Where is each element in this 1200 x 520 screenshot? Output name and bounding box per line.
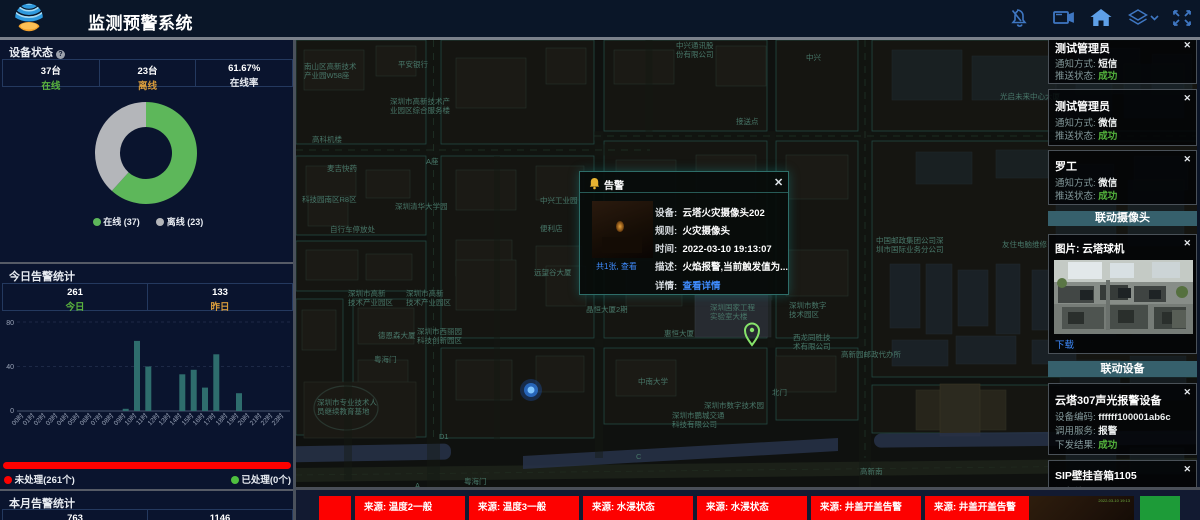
svg-text:惠恒大厦: 惠恒大厦 bbox=[664, 328, 694, 338]
svg-text:科技园南区R8区: 科技园南区R8区 bbox=[302, 194, 357, 204]
svg-text:友住电脑维修: 友住电脑维修 bbox=[1002, 239, 1047, 249]
svg-text:术有限公司: 术有限公司 bbox=[793, 341, 831, 351]
svg-text:晶恒大厦2期: 晶恒大厦2期 bbox=[586, 304, 628, 314]
svg-text:高科机楼: 高科机楼 bbox=[312, 134, 342, 144]
svg-text:高新园邮政代办所: 高新园邮政代办所 bbox=[841, 349, 901, 359]
svg-text:产业园W58座: 产业园W58座 bbox=[304, 70, 350, 80]
svg-text:南山区高新技术: 南山区高新技术 bbox=[304, 61, 357, 71]
svg-text:圳市国际业务分公司: 圳市国际业务分公司 bbox=[876, 244, 944, 254]
svg-text:中兴工业园: 中兴工业园 bbox=[540, 195, 578, 205]
svg-text:科技有限公司: 科技有限公司 bbox=[672, 419, 717, 429]
svg-text:40: 40 bbox=[6, 364, 14, 371]
svg-text:技术园区: 技术园区 bbox=[789, 309, 819, 319]
svg-text:份有限公司: 份有限公司 bbox=[676, 49, 714, 59]
svg-text:深圳清华大学园: 深圳清华大学园 bbox=[395, 201, 448, 211]
svg-text:实验室大楼: 实验室大楼 bbox=[710, 311, 748, 321]
svg-text:中兴: 中兴 bbox=[806, 52, 821, 62]
svg-text:高新南: 高新南 bbox=[860, 466, 883, 476]
svg-text:深圳市高新: 深圳市高新 bbox=[406, 288, 444, 298]
svg-text:深圳市西丽园: 深圳市西丽园 bbox=[417, 326, 462, 336]
svg-text:中国邮政集团公司深: 中国邮政集团公司深 bbox=[876, 235, 944, 245]
svg-text:德恩森大厦: 德恩森大厦 bbox=[378, 330, 416, 340]
svg-text:西龙同胜技: 西龙同胜技 bbox=[793, 332, 831, 342]
svg-text:自行车停放处: 自行车停放处 bbox=[330, 224, 375, 234]
svg-text:D1: D1 bbox=[439, 432, 449, 441]
svg-text:接送点: 接送点 bbox=[736, 116, 759, 126]
svg-text:远望谷大厦: 远望谷大厦 bbox=[534, 267, 572, 277]
svg-text:80: 80 bbox=[6, 320, 14, 327]
svg-text:业园区综合服务楼: 业园区综合服务楼 bbox=[390, 105, 450, 115]
svg-text:中兴通讯股: 中兴通讯股 bbox=[676, 40, 714, 50]
svg-text:北门: 北门 bbox=[772, 388, 787, 397]
svg-text:技术产业园区: 技术产业园区 bbox=[406, 297, 451, 307]
svg-text:深圳市鹏城交通: 深圳市鹏城交通 bbox=[672, 410, 725, 420]
svg-text:粤海门: 粤海门 bbox=[464, 476, 487, 486]
svg-text:深圳市高新技术产: 深圳市高新技术产 bbox=[390, 96, 450, 106]
svg-text:科技创新园区: 科技创新园区 bbox=[417, 335, 462, 345]
svg-text:平安银行: 平安银行 bbox=[398, 59, 428, 69]
svg-text:深圳市高新: 深圳市高新 bbox=[348, 288, 386, 298]
svg-text:深圳市专业技术人: 深圳市专业技术人 bbox=[317, 397, 377, 407]
svg-text:C: C bbox=[636, 452, 642, 461]
svg-text:深圳市数字技术园: 深圳市数字技术园 bbox=[704, 400, 764, 410]
svg-text:员继续教育基地: 员继续教育基地 bbox=[317, 406, 370, 416]
svg-text:麦吉快药: 麦吉快药 bbox=[327, 163, 357, 173]
svg-text:深圳市数字: 深圳市数字 bbox=[789, 300, 827, 310]
svg-text:技术产业园区: 技术产业园区 bbox=[348, 297, 393, 307]
svg-text:粤海门: 粤海门 bbox=[374, 354, 397, 364]
svg-text:0: 0 bbox=[10, 408, 14, 415]
svg-text:深圳国家工程: 深圳国家工程 bbox=[710, 302, 755, 312]
svg-text:中南大学: 中南大学 bbox=[638, 376, 668, 386]
svg-text:便利店: 便利店 bbox=[540, 223, 563, 233]
svg-text:A座: A座 bbox=[426, 156, 439, 166]
